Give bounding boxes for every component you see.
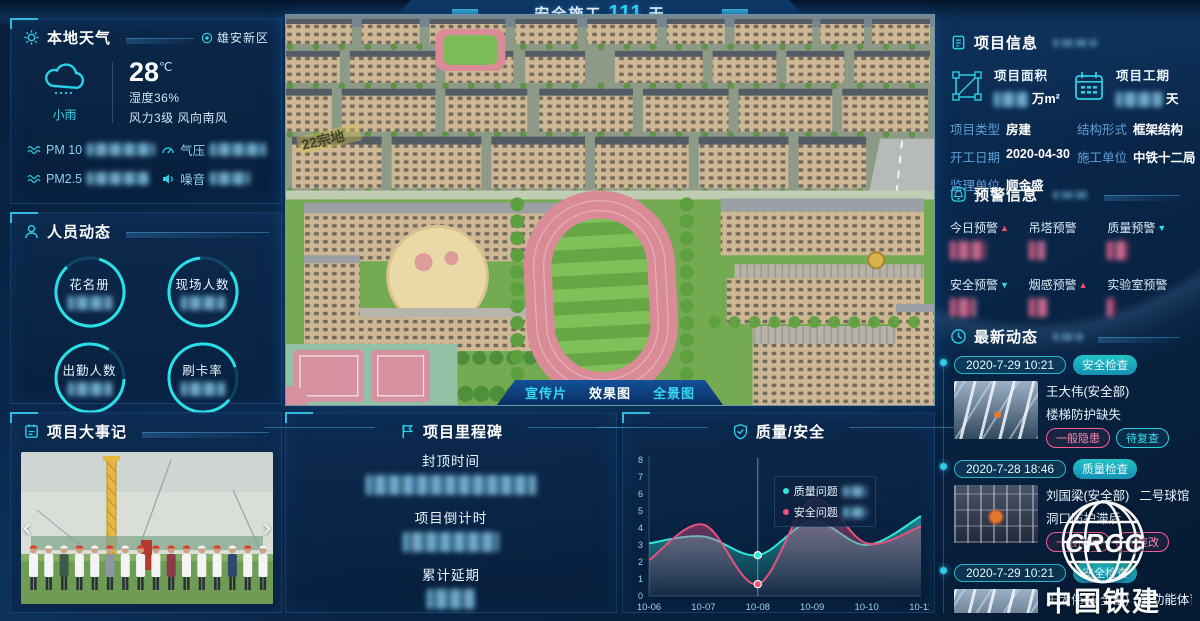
viewer-tab-全景图[interactable]: 全景图 <box>653 383 695 402</box>
issue-text: 楼梯防护缺失 <box>1046 404 1169 423</box>
feed-tags: 一般问题待整改 <box>1046 532 1189 552</box>
feed-entry-info: 刘国梁(安全部)二号球馆洞口防护滞后一般问题待整改 <box>1046 485 1189 552</box>
feed-entry-body: 王大伟(安全部)多功能体育馆楼梯防护缺失一般隐患待复查 <box>954 589 1192 613</box>
feed-list: 2020-7-29 10:21安全检查王大伟(安全部)楼梯防护缺失一般隐患待复查… <box>938 353 1192 613</box>
timestamp-pill: 2020-7-28 18:46 <box>954 460 1066 478</box>
ring-content: 刷卡率 <box>165 340 241 416</box>
carousel-prev-arrow[interactable]: ‹ <box>23 516 31 540</box>
masked-value <box>950 298 976 317</box>
feed-entry[interactable]: 2020-7-29 10:21安全检查王大伟(安全部)多功能体育馆楼梯防护缺失一… <box>954 563 1192 613</box>
feed-entry[interactable]: 2020-7-28 18:46质量检查刘国梁(安全部)二号球馆洞口防护滞后一般问… <box>954 459 1192 552</box>
viewer-tab-效果图[interactable]: 效果图 <box>589 383 631 402</box>
alert-item: 吊塔预警 <box>1029 219 1102 260</box>
svg-text:10-10: 10-10 <box>854 602 878 613</box>
milestone-panel: 项目里程碑 封顶时间项目倒计时累计延期 <box>285 412 617 613</box>
location-name: 二号球馆 <box>1139 485 1189 504</box>
viewer-tab-bar: 宣传片效果图全景图 <box>497 380 723 405</box>
milestone-item: 累计延期 <box>422 564 480 614</box>
trend-down-icon: ▼ <box>1157 223 1166 233</box>
milestone-items: 封顶时间项目倒计时累计延期 <box>286 448 616 614</box>
location-icon <box>201 32 213 44</box>
masked-value <box>210 143 266 156</box>
aerial-render: 22宗地 <box>286 15 934 406</box>
area-unit: 万m² <box>1032 88 1060 107</box>
timestamp-pill: 2020-7-29 10:21 <box>954 564 1066 582</box>
quality-safety-chart: 01234567810-0610-0710-0810-0910-1010-11 … <box>629 450 932 621</box>
milestone-item: 项目倒计时 <box>403 507 499 557</box>
alert-label-text: 安全预警 <box>950 276 998 293</box>
masked-value <box>181 382 225 396</box>
svg-text:10-11: 10-11 <box>909 602 929 613</box>
masked-value <box>68 382 112 396</box>
event-photo[interactable]: ‹ › <box>21 452 273 604</box>
location-name: 多功能体育馆 <box>1139 589 1192 608</box>
wind: 风力3级 风向南风 <box>129 109 228 126</box>
field-value: 房建 <box>1006 119 1031 138</box>
issue-text: 洞口防护滞后 <box>1046 508 1189 527</box>
field-label: 开工日期 <box>950 147 1000 166</box>
title-rule <box>142 432 269 438</box>
masked-value <box>1107 241 1129 260</box>
svg-text:2: 2 <box>638 557 643 567</box>
weather-metric: 噪音 <box>161 169 266 188</box>
feed-entry-head: 2020-7-28 18:46质量检查 <box>954 459 1192 479</box>
masked-value <box>1029 241 1045 260</box>
field-label: 施工单位 <box>1077 147 1127 166</box>
svg-text:1: 1 <box>638 574 643 584</box>
masked-value <box>1029 298 1047 317</box>
svg-text:10-06: 10-06 <box>637 602 661 613</box>
feed-entry-body: 王大伟(安全部)楼梯防护缺失一般隐患待复查 <box>954 381 1192 448</box>
feed-entry-info: 王大伟(安全部)多功能体育馆楼梯防护缺失一般隐患待复查 <box>1046 589 1192 613</box>
tag-一般隐患: 一般隐患 <box>1046 428 1110 448</box>
temperature: 28℃ <box>129 58 228 86</box>
masked-value <box>427 589 475 609</box>
area-icon <box>948 67 986 105</box>
metric-label: 噪音 <box>180 169 205 188</box>
personnel-panel: 人员动态 花名册现场人数出勤人数刷卡率 <box>10 212 282 404</box>
svg-text:10-09: 10-09 <box>800 602 824 613</box>
person-name: 刘国梁(安全部) <box>1046 485 1129 504</box>
svg-text:7: 7 <box>638 472 643 482</box>
masked-value <box>87 172 149 185</box>
feed-entry-info: 王大伟(安全部)楼梯防护缺失一般隐患待复查 <box>1046 381 1169 448</box>
title-deco <box>1053 333 1083 341</box>
project-duration-stat: 项目工期 天 <box>1070 65 1182 107</box>
feed-entry-head: 2020-7-29 10:21安全检查 <box>954 563 1192 583</box>
svg-text:10-08: 10-08 <box>746 602 770 613</box>
feed-name-row: 刘国梁(安全部)二号球馆 <box>1046 485 1189 504</box>
feed-thumbnail <box>954 485 1038 543</box>
title-wing <box>597 427 715 436</box>
project-field: 开工日期2020-04-30 <box>950 147 1073 166</box>
weather-metric: 气压 <box>161 140 266 159</box>
tag-一般问题: 一般问题 <box>1046 532 1110 552</box>
weather-panel: 本地天气 雄安新区 小雨 28℃ 湿度36% 风力3级 风向南风 PM 10气压… <box>10 18 282 204</box>
title-rule <box>1104 195 1180 201</box>
site-3d-viewer[interactable]: 22宗地 宣传片效果图全景图 <box>285 14 935 406</box>
svg-text:5: 5 <box>638 506 643 516</box>
alarm-icon <box>950 186 967 203</box>
document-icon <box>950 34 967 51</box>
feed-tags: 一般隐患待复查 <box>1046 428 1169 448</box>
alert-label-text: 吊塔预警 <box>1029 219 1077 236</box>
viewer-tab-宣传片[interactable]: 宣传片 <box>525 383 567 402</box>
ring-label: 现场人数 <box>175 274 229 293</box>
project-field: 项目类型房建 <box>950 119 1073 138</box>
alert-label-text: 质量预警 <box>1107 219 1155 236</box>
feed-entry[interactable]: 2020-7-29 10:21安全检查王大伟(安全部)楼梯防护缺失一般隐患待复查 <box>954 355 1192 448</box>
milestone-title: 项目里程碑 <box>423 421 503 442</box>
check-type-badge: 质量检查 <box>1073 459 1137 479</box>
title-deco <box>1053 191 1089 199</box>
person-icon <box>23 223 40 240</box>
alert-item: 实验室预警 <box>1107 276 1180 317</box>
feed-thumbnail <box>954 589 1038 613</box>
masked-value <box>994 92 1028 107</box>
quality-safety-panel: 质量/安全 01234567810-0610-0710-0810-0910-10… <box>622 412 935 613</box>
timestamp-pill: 2020-7-29 10:21 <box>954 356 1066 374</box>
person-name: 王大伟(安全部) <box>1046 381 1129 400</box>
personnel-ring: 刷卡率 <box>165 340 241 416</box>
milestone-label: 累计延期 <box>422 564 480 584</box>
masked-value <box>68 296 112 310</box>
field-label: 项目类型 <box>950 119 1000 138</box>
feed-name-row: 王大伟(安全部) <box>1046 381 1169 400</box>
personnel-ring: 花名册 <box>52 254 128 330</box>
alert-label: 质量预警▼ <box>1107 219 1180 236</box>
ring-label: 刷卡率 <box>182 360 223 379</box>
masked-value <box>403 532 499 552</box>
alert-label: 烟感预警▲ <box>1029 276 1102 293</box>
check-type-badge: 安全检查 <box>1073 563 1137 583</box>
weather-metric: PM2.5 <box>27 169 155 188</box>
pm10-icon <box>27 143 41 157</box>
title-rule <box>126 232 269 238</box>
project-field: 施工单位中铁十二局 <box>1077 147 1196 166</box>
alert-item: 质量预警▼ <box>1107 219 1180 260</box>
tag-待复查: 待复查 <box>1116 428 1169 448</box>
feed-title: 最新动态 <box>974 326 1038 347</box>
feed-thumbnail <box>954 381 1038 439</box>
trend-up-icon: ▲ <box>1079 280 1088 290</box>
duration-label: 项目工期 <box>1116 65 1179 84</box>
alert-item: 今日预警▲ <box>950 219 1023 260</box>
alert-label: 实验室预警 <box>1107 276 1180 293</box>
project-area-stat: 项目面积 万m² <box>948 65 1060 107</box>
ring-content: 花名册 <box>52 254 128 330</box>
group-photo-illustration <box>21 452 273 604</box>
humidity: 湿度36% <box>129 89 228 106</box>
field-value: 2020-04-30 <box>1006 147 1070 166</box>
rain-cloud-icon <box>42 62 88 98</box>
milestone-label: 封顶时间 <box>366 450 536 470</box>
svg-text:3: 3 <box>638 540 643 550</box>
svg-text:6: 6 <box>638 489 643 499</box>
flag-icon <box>399 423 416 440</box>
alerts-title: 预警信息 <box>974 184 1038 205</box>
feed-entry-body: 刘国梁(安全部)二号球馆洞口防护滞后一般问题待整改 <box>954 485 1192 552</box>
field-value: 中铁十二局 <box>1133 147 1196 166</box>
alert-label-text: 今日预警 <box>950 219 998 236</box>
pm25-icon <box>27 172 41 186</box>
svg-text:0: 0 <box>638 591 643 601</box>
location-label: 雄安新区 <box>217 29 269 46</box>
issue-text: 楼梯防护缺失 <box>1046 612 1192 613</box>
personnel-ring: 出勤人数 <box>52 340 128 416</box>
ring-label: 花名册 <box>69 274 110 293</box>
notebook-icon <box>23 423 40 440</box>
svg-text:10-07: 10-07 <box>691 602 715 613</box>
latest-updates-panel: 最新动态 2020-7-29 10:21安全检查王大伟(安全部)楼梯防护缺失一般… <box>938 318 1192 613</box>
alert-label: 吊塔预警 <box>1029 219 1102 236</box>
project-info-panel: 项目信息 项目面积 万m² 项目工期 天 项目类型房建结构形式框架结构开 <box>938 24 1192 174</box>
feed-name-row: 王大伟(安全部)多功能体育馆 <box>1046 589 1192 608</box>
alerts-grid: 今日预警▲吊塔预警质量预警▼安全预警▼烟感预警▲实验室预警 <box>938 211 1192 325</box>
chart-title: 质量/安全 <box>756 421 825 442</box>
check-type-badge: 安全检查 <box>1073 355 1137 375</box>
weather-condition: 小雨 <box>27 106 102 123</box>
location-chip[interactable]: 雄安新区 <box>201 29 269 46</box>
ring-content: 出勤人数 <box>52 340 128 416</box>
tag-待整改: 待整改 <box>1116 532 1169 552</box>
weather-current: 小雨 28℃ 湿度36% 风力3级 风向南风 <box>11 54 281 128</box>
title-deco <box>1053 39 1097 47</box>
field-label: 结构形式 <box>1077 119 1127 138</box>
field-value: 框架结构 <box>1133 119 1183 138</box>
pressure-icon <box>161 143 175 157</box>
ring-label: 出勤人数 <box>62 360 116 379</box>
line-chart: 01234567810-0610-0710-0810-0910-1010-11 <box>629 450 929 616</box>
events-title: 项目大事记 <box>47 421 127 442</box>
masked-value <box>210 172 250 185</box>
alert-label: 安全预警▼ <box>950 276 1023 293</box>
milestone-item: 封顶时间 <box>366 450 536 500</box>
project-stats: 项目面积 万m² 项目工期 天 <box>938 59 1192 115</box>
svg-text:4: 4 <box>638 523 643 533</box>
alerts-panel: 预警信息 今日预警▲吊塔预警质量预警▼安全预警▼烟感预警▲实验室预警 <box>938 176 1192 314</box>
trend-up-icon: ▲ <box>1000 223 1009 233</box>
title-wing <box>264 427 382 436</box>
person-name: 王大伟(安全部) <box>1046 589 1129 608</box>
weather-title: 本地天气 <box>47 27 111 48</box>
trend-down-icon: ▼ <box>1000 280 1009 290</box>
alert-item: 烟感预警▲ <box>1029 276 1102 317</box>
carousel-next-arrow[interactable]: › <box>263 516 271 540</box>
weather-metrics: PM 10气压PM2.5噪音 <box>11 128 281 188</box>
masked-value <box>366 475 536 495</box>
metric-label: PM2.5 <box>46 172 82 186</box>
masked-value <box>950 241 986 260</box>
masked-value <box>1107 298 1116 317</box>
feed-entry-head: 2020-7-29 10:21安全检查 <box>954 355 1192 375</box>
clock-icon <box>950 328 967 345</box>
alert-label-text: 烟感预警 <box>1029 276 1077 293</box>
personnel-title: 人员动态 <box>47 221 111 242</box>
area-label: 项目面积 <box>994 65 1060 84</box>
duration-unit: 天 <box>1166 88 1179 107</box>
alert-item: 安全预警▼ <box>950 276 1023 317</box>
metric-label: 气压 <box>180 140 205 159</box>
calendar-icon <box>1070 67 1108 105</box>
project-field: 结构形式框架结构 <box>1077 119 1196 138</box>
svg-text:8: 8 <box>638 455 643 465</box>
personnel-ring: 现场人数 <box>165 254 241 330</box>
milestone-label: 项目倒计时 <box>403 507 499 527</box>
masked-value <box>181 296 225 310</box>
metric-label: PM 10 <box>46 143 82 157</box>
alert-label: 今日预警▲ <box>950 219 1023 236</box>
masked-value <box>87 143 155 156</box>
title-rule <box>1098 337 1180 343</box>
noise-icon <box>161 172 175 186</box>
masked-value <box>1116 92 1162 107</box>
title-rule <box>126 38 194 44</box>
project-info-title: 项目信息 <box>974 32 1038 53</box>
weather-metric: PM 10 <box>27 140 155 159</box>
personnel-rings: 花名册现场人数出勤人数刷卡率 <box>11 248 281 422</box>
project-events-panel: 项目大事记 ‹ › <box>10 412 282 613</box>
shield-check-icon <box>732 423 749 440</box>
weather-gear-icon <box>23 29 40 46</box>
alert-label-text: 实验室预警 <box>1107 276 1167 293</box>
ring-content: 现场人数 <box>165 254 241 330</box>
